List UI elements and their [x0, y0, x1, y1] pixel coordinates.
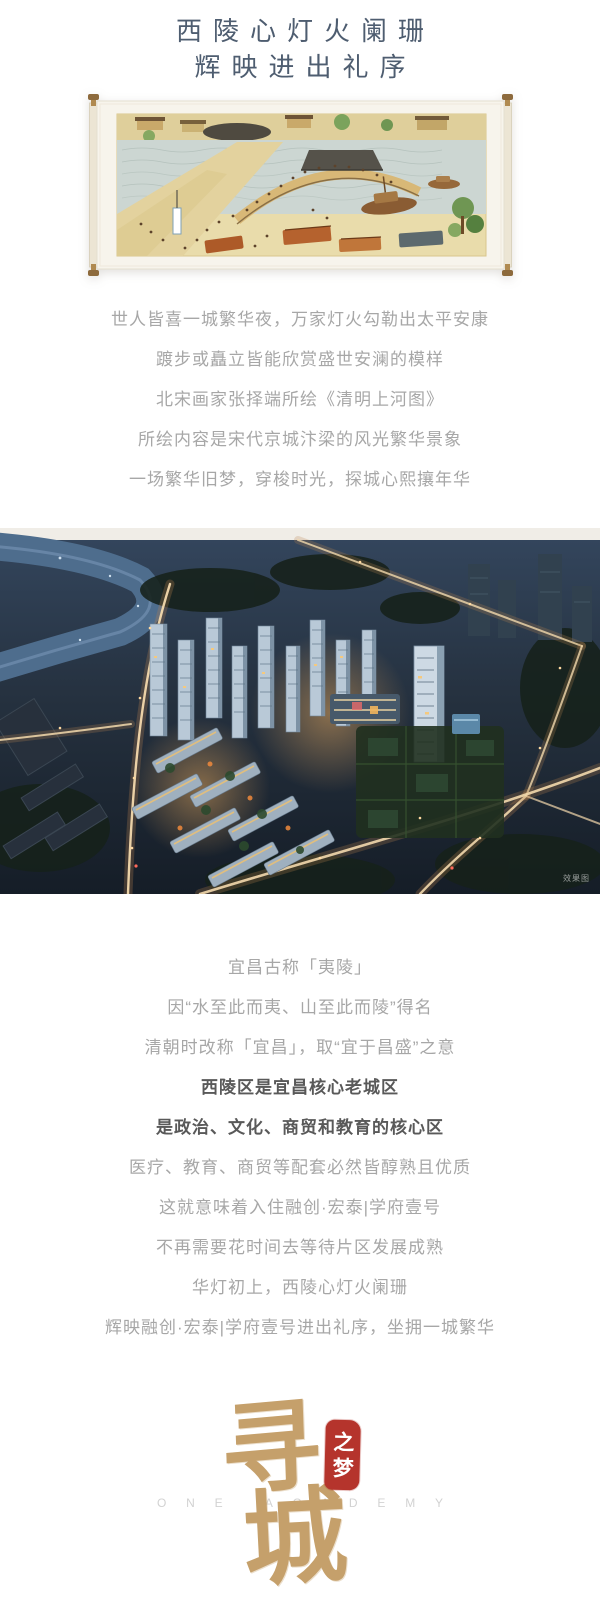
intro-line: 踱步或矗立皆能欣赏盛世安澜的模样 — [0, 340, 600, 380]
body-line: 医疗、教育、商贸等配套必然皆醇熟且优质 — [0, 1148, 600, 1188]
school-park-block — [356, 726, 504, 838]
intro-line: 世人皆喜一城繁华夜，万家灯火勾勒出太平安康 — [0, 300, 600, 340]
red-seal-stamp: 之梦 — [324, 1420, 361, 1491]
brand-logo: ONE ACADEMY 寻 城 之梦 — [0, 1394, 600, 1624]
page-title: 西陵心灯火阑珊 辉映进出礼序 — [0, 0, 600, 86]
scroll-painting-image — [87, 90, 514, 282]
brand-calligraphy: 寻 城 之梦 — [185, 1394, 415, 1624]
calligraphy-char-cheng: 城 — [240, 1483, 349, 1592]
title-line-2: 辉映进出礼序 — [11, 50, 600, 86]
scroll-painting-graphic — [87, 90, 514, 282]
scroll-right-roller — [503, 103, 511, 267]
body-paragraph: 宜昌古称「夷陵」 因“水至此而夷、山至此而陵”得名 清朝时改称「宜昌」，取“宜于… — [0, 948, 600, 1348]
body-line: 不再需要花时间去等待片区发展成熟 — [0, 1228, 600, 1268]
painting-scene — [117, 114, 486, 256]
aerial-render-graphic — [0, 528, 600, 894]
title-line-1: 西陵心灯火阑珊 — [11, 14, 600, 50]
intro-line: 所绘内容是宋代京城汴梁的风光繁华景象 — [0, 420, 600, 460]
intro-paragraph: 世人皆喜一城繁华夜，万家灯火勾勒出太平安康 踱步或矗立皆能欣赏盛世安澜的模样 北… — [0, 300, 600, 500]
body-line: 这就意味着入住融创·宏泰|学府壹号 — [0, 1188, 600, 1228]
intro-line: 北宋画家张择端所绘《清明上河图》 — [0, 380, 600, 420]
body-line: 清朝时改称「宜昌」，取“宜于昌盛”之意 — [0, 1028, 600, 1068]
body-line: 宜昌古称「夷陵」 — [0, 948, 600, 988]
intro-line: 一场繁华旧梦，穿梭时光，探城心熙攘年华 — [0, 460, 600, 500]
body-line: 因“水至此而夷、山至此而陵”得名 — [0, 988, 600, 1028]
body-line: 辉映融创·宏泰|学府壹号进出礼序，坐拥一城繁华 — [0, 1308, 600, 1348]
seal-text: 之梦 — [327, 1427, 358, 1484]
aerial-render-image: 效果图 — [0, 528, 600, 894]
render-watermark: 效果图 — [563, 873, 590, 884]
body-line-bold: 西陵区是宜昌核心老城区 — [0, 1068, 600, 1108]
body-line: 华灯初上，西陵心灯火阑珊 — [0, 1268, 600, 1308]
body-line-bold: 是政治、文化、商贸和教育的核心区 — [0, 1108, 600, 1148]
scroll-left-roller — [89, 103, 97, 267]
article-page: 西陵心灯火阑珊 辉映进出礼序 — [0, 0, 600, 1624]
